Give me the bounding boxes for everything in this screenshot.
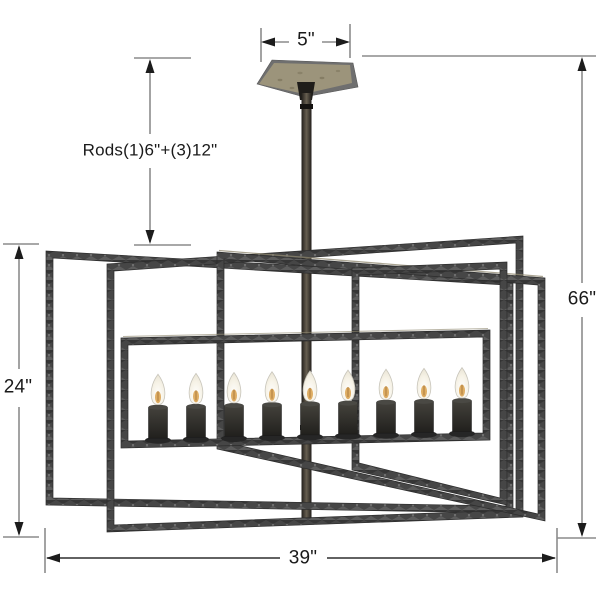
frame-rectangle-outer-left: [46, 251, 513, 513]
candle: [411, 368, 437, 438]
cage-height-label: 24": [1, 378, 35, 399]
candle: [183, 373, 209, 443]
cage-width-label: 39": [286, 549, 320, 570]
diagram-canvas: 5" Rods(1)6"+(3)12" 66" 24" 39": [0, 0, 600, 600]
candle: [449, 368, 475, 438]
dim-overall-height: [362, 56, 596, 538]
candle: [221, 373, 247, 443]
candle: [145, 374, 171, 444]
chandelier-illustration: [0, 0, 600, 600]
overall-height-label: 66": [565, 290, 599, 311]
candle: [297, 371, 323, 441]
canopy-width-label: 5": [294, 31, 318, 52]
rods-label: Rods(1)6"+(3)12": [80, 142, 221, 161]
candle: [259, 372, 285, 442]
candle: [373, 369, 399, 439]
stem-rod: [300, 93, 313, 518]
candle-lights-row: [145, 368, 475, 444]
